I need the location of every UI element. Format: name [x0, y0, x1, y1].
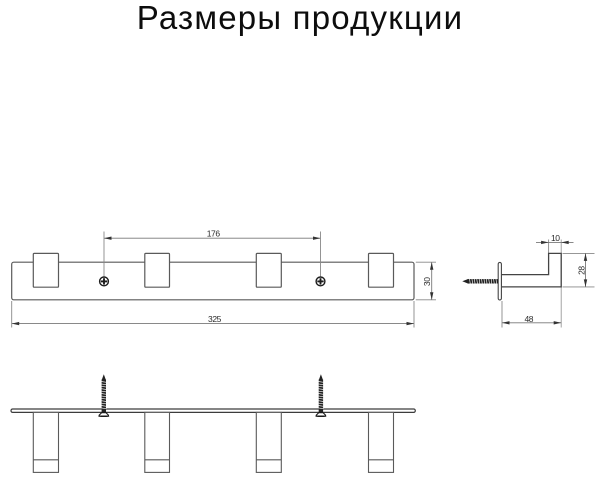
svg-text:28: 28 — [577, 266, 587, 275]
svg-text:48: 48 — [524, 314, 533, 324]
svg-text:176: 176 — [207, 229, 221, 239]
svg-text:Размеры продукции: Размеры продукции — [137, 0, 464, 36]
svg-text:325: 325 — [208, 314, 222, 324]
svg-text:10: 10 — [551, 233, 560, 243]
svg-text:30: 30 — [422, 277, 432, 286]
